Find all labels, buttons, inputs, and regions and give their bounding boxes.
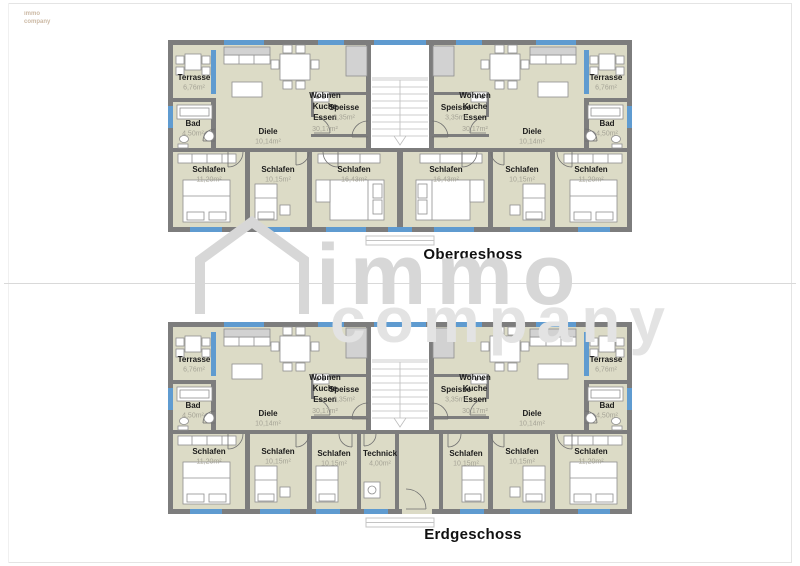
floor-plan-drawing: Terrasse6,76m²Terrasse6,76m²Bad4,50m²Bad…: [168, 322, 632, 534]
room-label: Terrasse: [178, 355, 211, 364]
room-label: 10,15m²: [509, 177, 535, 184]
room-label: 30,17m²: [462, 408, 488, 415]
room-label: Schlafen: [192, 447, 225, 456]
room-label: Schlafen: [261, 165, 294, 174]
room-label: Wohnen: [309, 91, 341, 100]
corner-logo-line2: company: [24, 19, 50, 27]
floor-title-obergeschoss: Obergeshoss: [388, 246, 558, 263]
room-label: 30,17m²: [312, 126, 338, 133]
room-label: 11,20m²: [578, 459, 604, 466]
room-label: Schlafen: [192, 165, 225, 174]
room-label: 4,50m²: [182, 131, 204, 138]
room-label: Speisse: [441, 103, 472, 112]
room-label: Schlafen: [317, 449, 350, 458]
room-label: 10,15m²: [265, 459, 291, 466]
room-label: 4,50m²: [596, 131, 618, 138]
room-label: Diele: [258, 127, 278, 136]
room-label: Wohnen: [459, 373, 491, 382]
room-label: 6,76m²: [183, 85, 205, 92]
floor-title-erdgeschoss: Erdgeschoss: [388, 526, 558, 543]
room-label: Terrasse: [590, 73, 623, 82]
room-label: Schlafen: [505, 165, 538, 174]
floor-plan-erdgeschoss: Terrasse6,76m²Terrasse6,76m²Bad4,50m²Bad…: [168, 322, 632, 534]
room-label: 6,76m²: [595, 367, 617, 374]
room-label: 30,17m²: [462, 126, 488, 133]
room-label: 3,35m²: [333, 115, 355, 122]
room-label: Schlafen: [449, 449, 482, 458]
room-label: Speisse: [329, 103, 360, 112]
room-label: 30,17m²: [312, 408, 338, 415]
sheet-divider: [4, 283, 796, 284]
room-label: 16,43m²: [433, 177, 459, 184]
room-label: Diele: [522, 127, 542, 136]
room-label: Diele: [522, 409, 542, 418]
room-label: 10,14m²: [255, 139, 281, 146]
room-label: Schlafen: [337, 165, 370, 174]
room-label: 10,15m²: [265, 177, 291, 184]
floor-plan-obergeschoss: Terrasse6,76m²Terrasse6,76m²Bad4,50m²Bad…: [168, 40, 632, 252]
corner-logo-line1: immo: [24, 11, 50, 19]
room-label: 11,20m²: [578, 177, 604, 184]
room-label: 11,20m²: [196, 459, 222, 466]
room-label: 6,76m²: [595, 85, 617, 92]
room-label: Bad: [185, 119, 200, 128]
room-label: 3,35m²: [333, 397, 355, 404]
room-label: Speisse: [441, 385, 472, 394]
room-label: Bad: [185, 401, 200, 410]
room-label: 10,15m²: [321, 461, 347, 468]
corner-logo: immo company: [24, 11, 50, 26]
room-label: 10,15m²: [509, 459, 535, 466]
room-label: Bad: [599, 401, 614, 410]
room-label: Schlafen: [505, 447, 538, 456]
room-label: Bad: [599, 119, 614, 128]
room-label: Diele: [258, 409, 278, 418]
room-label: Schlafen: [261, 447, 294, 456]
page-frame-bottom: [8, 562, 792, 563]
floor-plan-drawing: Terrasse6,76m²Terrasse6,76m²Bad4,50m²Bad…: [168, 40, 632, 252]
page-frame-top: [8, 3, 792, 4]
room-label: Wohnen: [459, 91, 491, 100]
room-label: 10,15m²: [453, 461, 479, 468]
room-label: 4,00m²: [369, 461, 391, 468]
room-label: 4,50m²: [596, 413, 618, 420]
room-label: Schlafen: [429, 165, 462, 174]
room-label: Speisse: [329, 385, 360, 394]
room-label: 16,43m²: [341, 177, 367, 184]
room-label: Terrasse: [590, 355, 623, 364]
room-label: 11,20m²: [196, 177, 222, 184]
room-label: Technick: [363, 449, 398, 458]
room-label: Wohnen: [309, 373, 341, 382]
room-label: Schlafen: [574, 165, 607, 174]
room-label: Terrasse: [178, 73, 211, 82]
room-label: 6,76m²: [183, 367, 205, 374]
room-label: 4,50m²: [182, 413, 204, 420]
room-label: 3,35m²: [445, 115, 467, 122]
room-label: 10,14m²: [519, 421, 545, 428]
room-label: 10,14m²: [255, 421, 281, 428]
room-label: 3,35m²: [445, 397, 467, 404]
room-label: Schlafen: [574, 447, 607, 456]
room-label: 10,14m²: [519, 139, 545, 146]
